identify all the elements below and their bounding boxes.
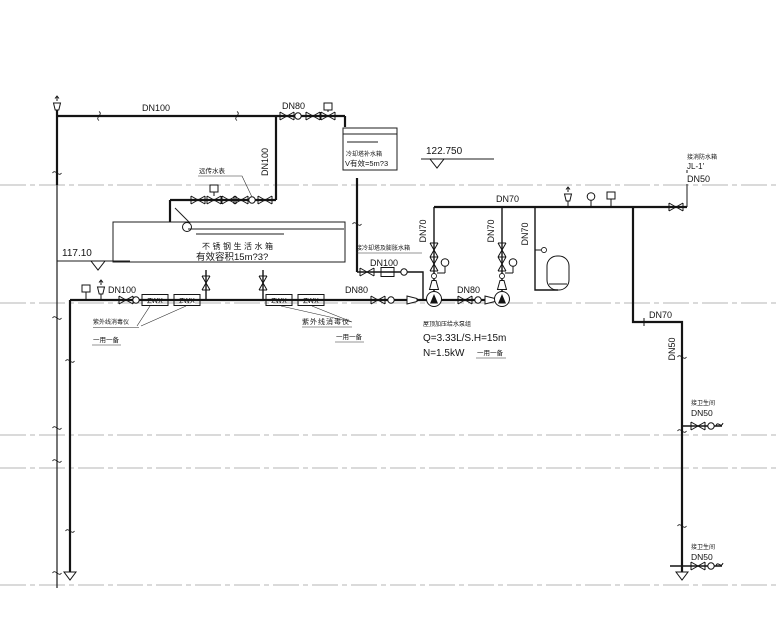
uv-box-label: ZWX	[271, 298, 287, 305]
check-device-icon	[295, 113, 301, 119]
piping-diagram: DN100 DN80 DN100 冷却塔补水箱 V有效=5m?3 122.750…	[0, 0, 780, 624]
check-device-icon	[388, 297, 394, 303]
uv-standby: 一用一备	[93, 335, 120, 344]
reducer-icon	[498, 281, 507, 290]
pressure-switch-icon	[607, 192, 615, 207]
pump-power: N=1.5kW	[423, 348, 465, 359]
tap-icon	[541, 247, 546, 252]
pressure-tank-icon	[547, 256, 569, 290]
level-switch-icon	[82, 285, 90, 300]
uv-label-2: 紫外线消毒仪 一用一备	[281, 306, 364, 342]
left-riser	[53, 110, 62, 588]
pipe-label: DN80	[457, 285, 480, 295]
check-device-icon	[401, 269, 407, 275]
uv-name: 紫外线消毒仪	[93, 318, 129, 326]
pipe-label: DN50	[687, 174, 710, 184]
right-drop: DN70 DN50 接卫生间 DN50 接卫生间 DN50	[633, 207, 723, 580]
pipe-label: DN100	[370, 258, 398, 268]
uv-standby: 一用一备	[336, 332, 363, 341]
cooling-tank-name: 冷却塔补水箱	[346, 150, 382, 158]
elevation-triangle-icon	[91, 261, 105, 270]
solenoid-actuator-icon	[210, 185, 218, 192]
pipe-label-rotated: DN50	[667, 337, 677, 360]
washroom-label: 接卫生间	[691, 543, 715, 551]
uv-box-label: ZWX	[179, 298, 195, 305]
washroom-branch-1: 接卫生间 DN50	[682, 399, 723, 430]
uv-name: 紫外线消毒仪	[302, 317, 350, 326]
solenoid-actuator-icon	[324, 103, 332, 110]
pipe-label: DN50	[691, 552, 713, 562]
water-meter-icon	[249, 197, 255, 203]
pump-standby: 一用一备	[477, 348, 504, 357]
tap-icon	[431, 273, 436, 278]
pipe-label: DN70	[496, 194, 519, 204]
air-vent-icon	[98, 280, 105, 300]
pump-group: DN80 DN80 DN70 DN70 屋顶加压给水泵组 Q=3.33L/S.H…	[345, 207, 517, 359]
pipe-end-icon	[64, 572, 76, 580]
float-valve-icon	[183, 223, 192, 232]
dn70-header: DN70 DN70 接消防水箱 JL-1' DN50	[434, 153, 717, 290]
pipe-label: DN80	[282, 101, 305, 111]
pressure-gauge-icon	[509, 259, 517, 273]
pipe-label: DN100	[108, 285, 136, 295]
pipe-label-rotated: DN70	[520, 222, 530, 245]
pressure-gauge-icon	[587, 193, 595, 207]
domestic-tank-volume: 有效容积15m?3?	[196, 251, 268, 263]
washroom-label: 接卫生间	[691, 399, 715, 407]
check-device-icon	[708, 563, 714, 569]
pump-flow: Q=3.33L/S.H=15m	[423, 333, 506, 344]
floor-elevation-marker: 117.10	[57, 248, 130, 270]
pipe-label-rotated: DN70	[418, 219, 428, 242]
meter-label: 远传水表	[199, 166, 226, 175]
pump-name: 屋顶加压给水泵组	[423, 320, 471, 328]
elevation-triangle-icon	[430, 159, 444, 168]
cooling-tank-volume: V有效=5m?3	[345, 158, 388, 168]
domestic-tank-name: 不锈钢生活水箱	[202, 241, 276, 251]
fire-connection-label: 接消防水箱	[687, 153, 717, 161]
pump-icon	[427, 292, 442, 307]
pipe-label-rotated: DN100	[260, 148, 270, 176]
pump-spec: 屋顶加压给水泵组 Q=3.33L/S.H=15m N=1.5kW 一用一备	[423, 320, 506, 359]
check-device-icon	[133, 297, 139, 303]
washroom-branch-2: 接卫生间 DN50	[670, 543, 723, 570]
uv-box-label: ZWX	[147, 298, 163, 305]
check-device-icon	[708, 423, 714, 429]
pipe-label: DN50	[691, 408, 713, 418]
diagram-canvas: DN100 DN80 DN100 冷却塔补水箱 V有效=5m?3 122.750…	[0, 0, 780, 624]
pipe-end-icon	[676, 572, 688, 580]
cooling-feed-label: 接冷却塔及膨胀水箱	[356, 244, 410, 252]
fire-connection: 接消防水箱 JL-1' DN50	[684, 153, 717, 207]
roof-elevation-marker: 122.750	[421, 146, 494, 168]
pressure-gauge-icon	[441, 259, 449, 273]
elevation-value: 117.10	[62, 248, 92, 259]
tap-icon	[499, 273, 504, 278]
reducer-icon	[430, 281, 439, 290]
pipe-label: DN100	[142, 103, 170, 113]
floor-lines	[0, 185, 780, 585]
pipe-label: DN80	[345, 285, 368, 295]
pipe-label-rotated: DN70	[486, 219, 496, 242]
safety-vent-icon	[565, 187, 572, 207]
uv-box-label: ZWX	[303, 298, 319, 305]
roof-line: DN100 DN80 DN100	[54, 96, 346, 200]
elevation-value: 122.750	[426, 146, 463, 157]
uv-label-1: 紫外线消毒仪 一用一备	[92, 306, 186, 345]
pipe-label: DN70	[649, 310, 672, 320]
fire-riser-id: JL-1'	[687, 162, 705, 171]
pump-icon	[495, 292, 510, 307]
check-device-icon	[475, 297, 481, 303]
